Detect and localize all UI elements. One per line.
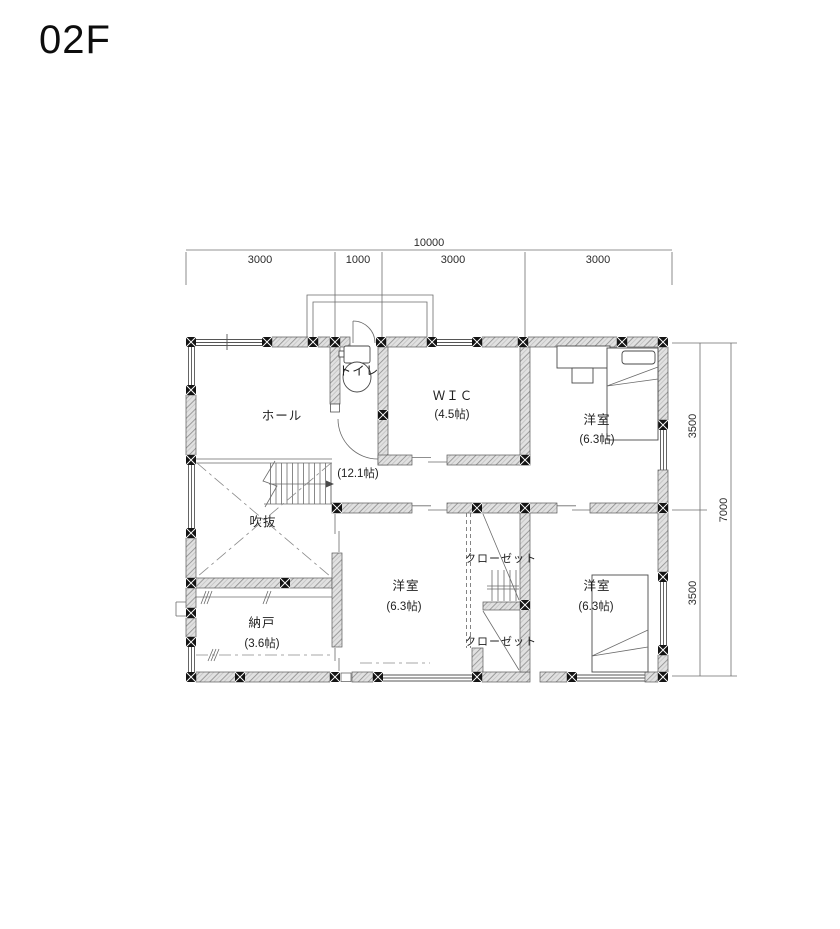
dim-top-seg-2: 3000 [441,254,465,266]
room-label-storage: 納戸 [248,616,275,630]
floor-plan-svg: 10000 3000 1000 3000 3000 3500 3500 7000 [0,0,840,929]
floorplan-page: 02F 10000 3000 1000 3000 3000 [0,0,840,929]
dim-top-total-label: 10000 [414,237,445,249]
stair-direction-arrow [326,481,334,488]
room-size-wic: (4.5帖) [434,407,469,421]
room-labels: ホール (12.1帖) トイレ ＷＩＣ (4.5帖) 洋室 (6.3帖) 吹抜 … [244,364,614,650]
dimension-top: 10000 3000 1000 3000 3000 [186,237,672,337]
room-label-bedroom-ne: 洋室 [583,412,610,427]
room-label-bedroom-se: 洋室 [583,578,610,593]
bed-icon-ne [607,348,658,440]
room-label-closet-upper: クローゼット [465,552,537,565]
dim-right-seg-1: 3500 [687,581,699,605]
dimension-right: 3500 3500 7000 [672,343,737,676]
stairs [196,459,334,507]
room-size-hall: (12.1帖) [337,466,379,480]
room-size-bedroom-s: (6.3帖) [386,599,421,613]
dim-right-seg-0: 3500 [687,414,699,438]
room-size-bedroom-ne: (6.3帖) [579,432,614,446]
room-label-toilet: トイレ [339,364,380,378]
dim-top-seg-0: 3000 [248,254,272,266]
desk-icon [557,346,610,383]
dim-top-seg-1: 1000 [346,254,370,266]
room-label-wic: ＷＩＣ [433,389,474,403]
room-label-void: 吹抜 [249,514,276,529]
room-size-bedroom-se: (6.3帖) [578,599,613,613]
balcony-outline [307,295,433,343]
room-size-storage: (3.6帖) [244,636,279,650]
room-label-hall: ホール [262,409,303,423]
dim-right-total: 7000 [718,498,730,522]
room-label-closet-lower: クローゼット [465,635,537,648]
room-label-bedroom-s: 洋室 [392,578,419,593]
dim-top-seg-3: 3000 [586,254,610,266]
